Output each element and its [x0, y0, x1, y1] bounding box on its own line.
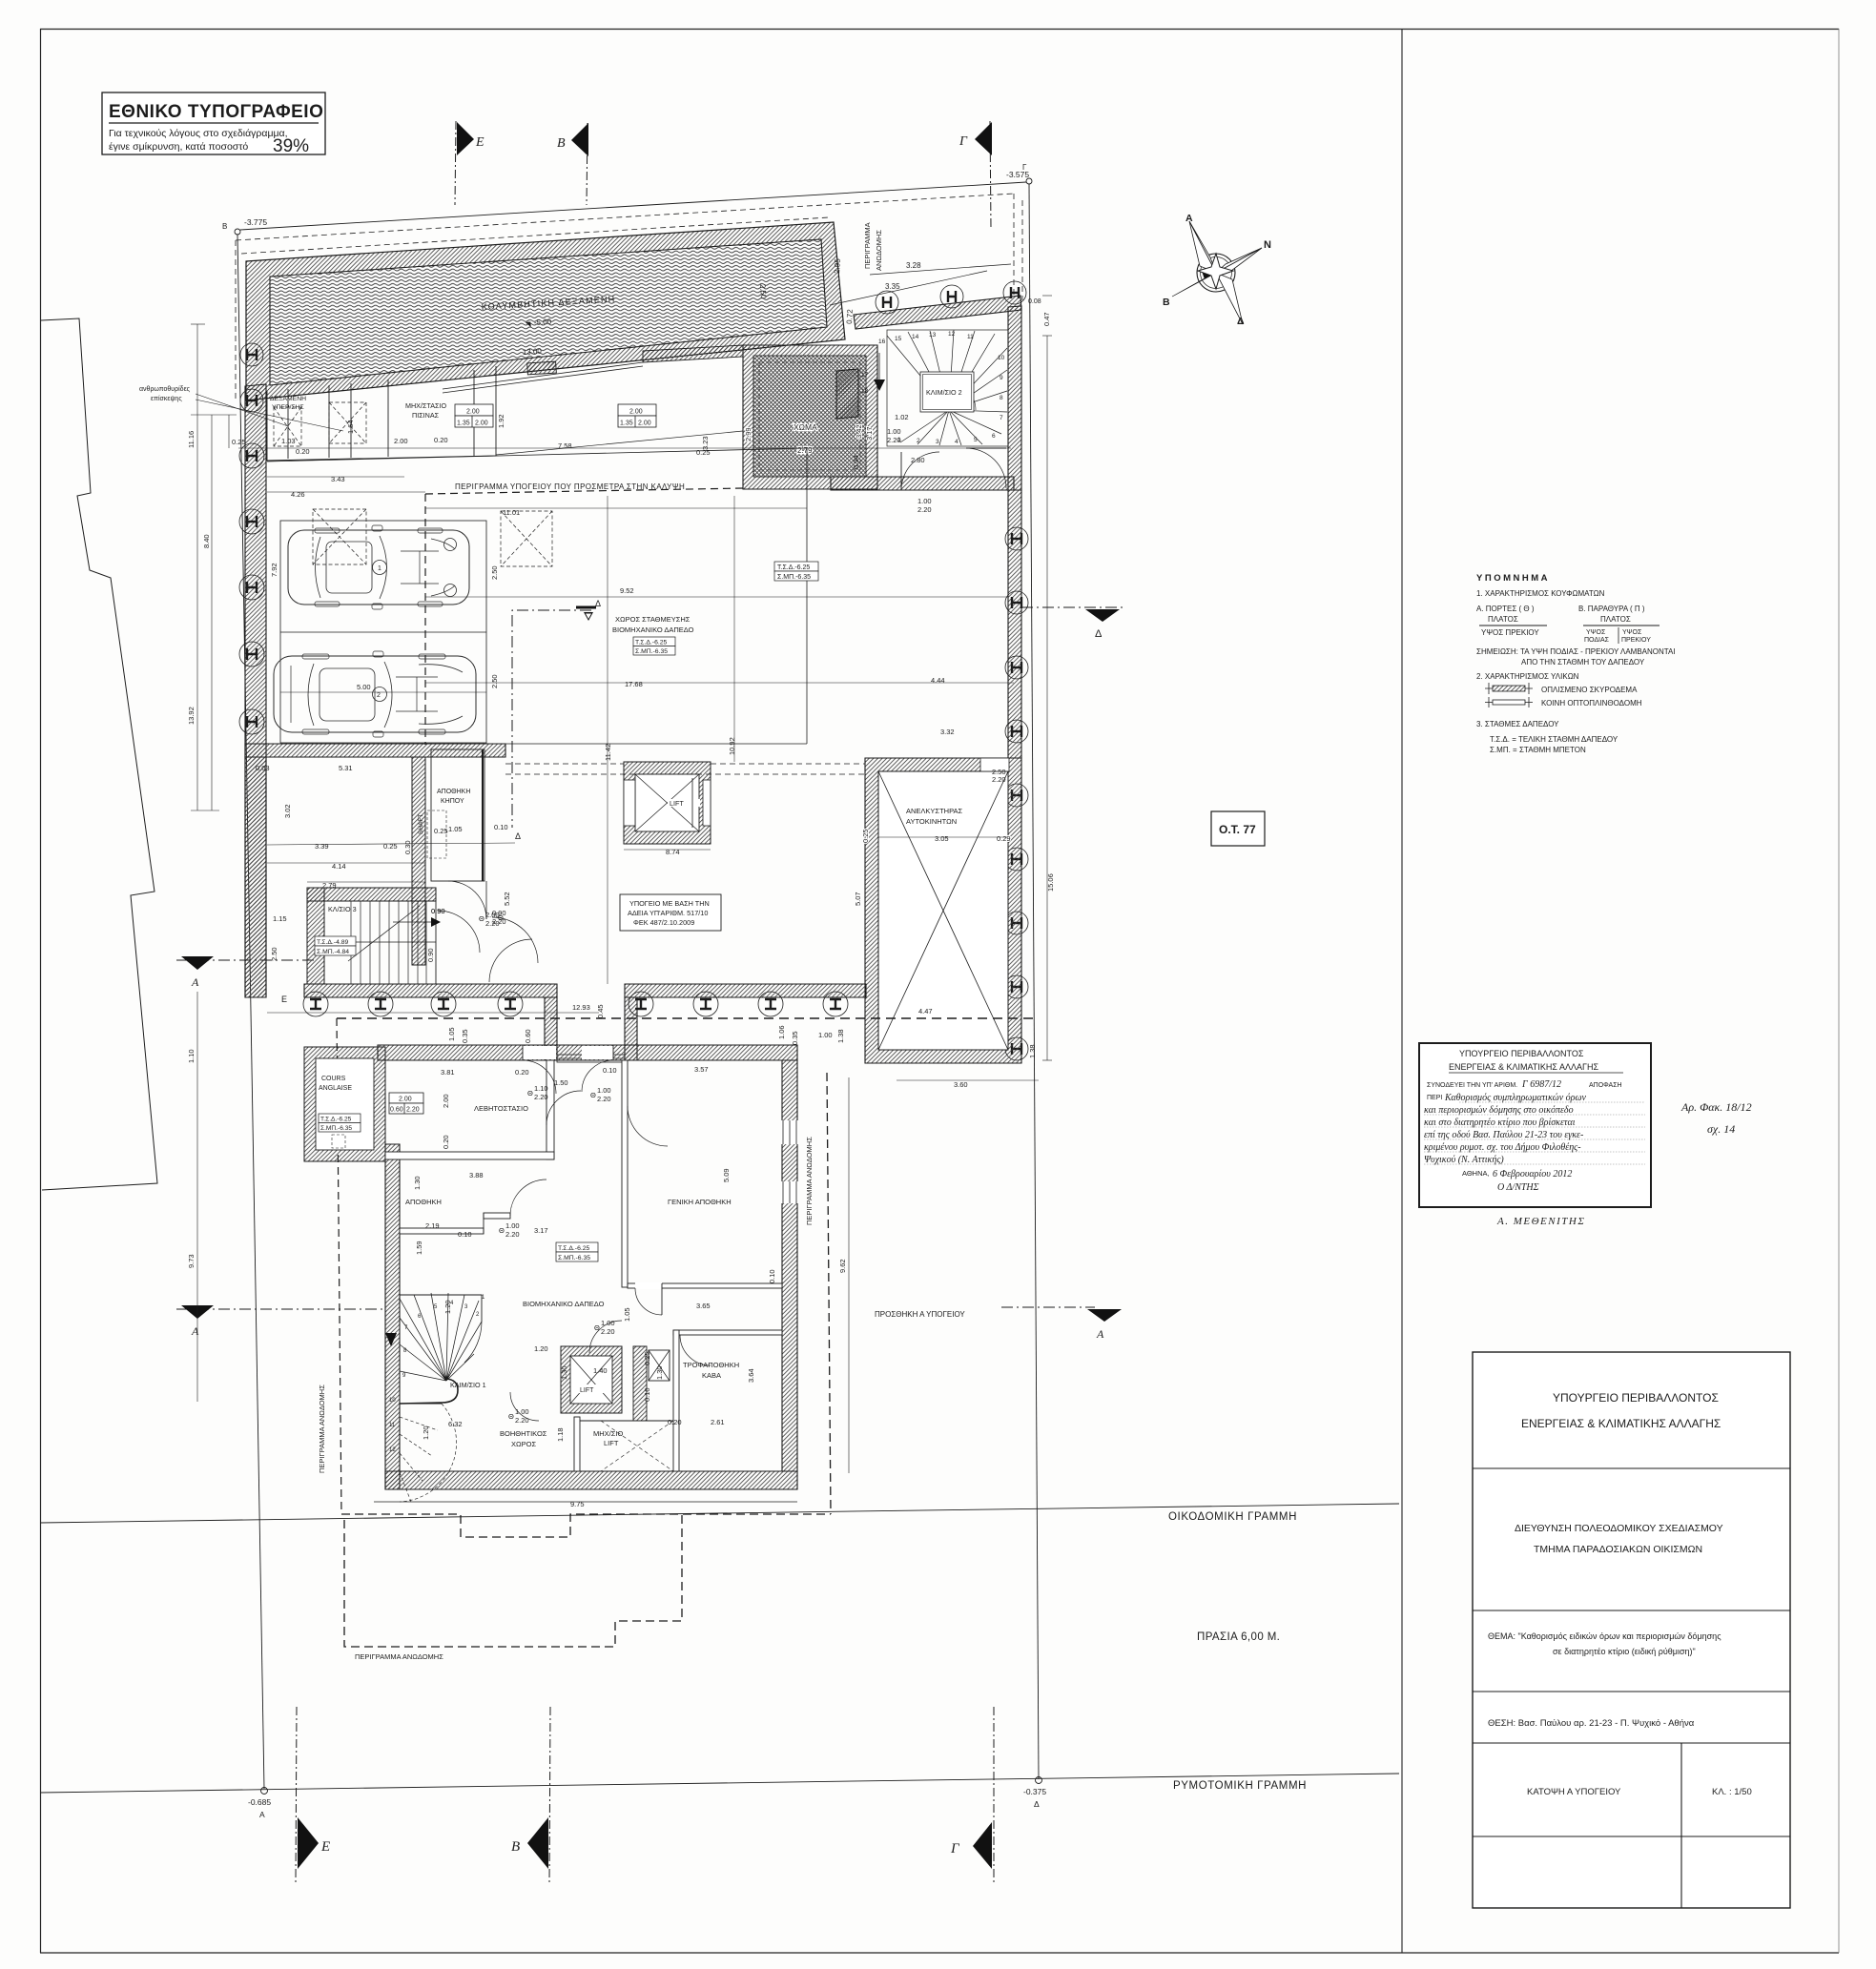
svg-text:1.30: 1.30	[655, 1365, 664, 1380]
svg-text:2.00: 2.00	[475, 420, 488, 427]
svg-text:0.20: 0.20	[442, 1135, 450, 1149]
svg-text:Σ.ΜΠ.-6.35: Σ.ΜΠ.-6.35	[320, 1125, 352, 1132]
svg-text:Σ.ΜΠ.-6.35: Σ.ΜΠ.-6.35	[558, 1255, 590, 1261]
svg-text:1.03: 1.03	[281, 437, 296, 445]
svg-text:1.40: 1.40	[593, 1366, 608, 1375]
svg-text:ΥΠΟΥΡΓΕΙΟ ΠΕΡΙΒΑΛΛΟΝΤΟΣ: ΥΠΟΥΡΓΕΙΟ ΠΕΡΙΒΑΛΛΟΝΤΟΣ	[1459, 1049, 1584, 1058]
svg-text:15: 15	[895, 336, 902, 342]
svg-text:ΣΗΜΕΙΩΣΗ: ΤΑ ΥΨΗ ΠΟΔΙΑΣ - ΠΡΕΚ: ΣΗΜΕΙΩΣΗ: ΤΑ ΥΨΗ ΠΟΔΙΑΣ - ΠΡΕΚΙΟΥ ΛΑΜΒΑΝ…	[1476, 647, 1676, 656]
svg-text:Θ: Θ	[527, 1089, 533, 1097]
svg-text:Α. ΠΟΡΤΕΣ ( Θ ): Α. ΠΟΡΤΕΣ ( Θ )	[1476, 605, 1535, 613]
svg-text:ΠΕΡΙΓΡΑΜΜΑ ΑΝΩΔΟΜΗΣ: ΠΕΡΙΓΡΑΜΜΑ ΑΝΩΔΟΜΗΣ	[355, 1652, 443, 1661]
svg-text:1.05: 1.05	[623, 1307, 631, 1322]
svg-text:39%: 39%	[273, 136, 309, 156]
svg-text:Ε: Ε	[281, 995, 287, 1004]
svg-text:ΚΛ/ΣΙΟ 3: ΚΛ/ΣΙΟ 3	[328, 905, 357, 913]
svg-text:Α: Α	[259, 1810, 265, 1819]
svg-text:16: 16	[878, 338, 886, 345]
svg-text:0.35: 0.35	[791, 1031, 799, 1045]
svg-text:1.10: 1.10	[187, 1049, 196, 1063]
svg-text:1.38: 1.38	[1028, 1044, 1037, 1058]
svg-text:0.47: 0.47	[1042, 312, 1051, 326]
svg-text:ΥΨΟΣ: ΥΨΟΣ	[1586, 629, 1606, 636]
svg-text:8: 8	[1000, 395, 1003, 401]
svg-text:ανθρωποθυρίδες: ανθρωποθυρίδες	[139, 385, 191, 393]
svg-text:Δ: Δ	[515, 831, 521, 841]
svg-text:1.00: 1.00	[597, 1086, 611, 1095]
svg-text:3.32: 3.32	[940, 728, 955, 736]
svg-text:ΥΨΟΣ ΠΡΕΚΙΟΥ: ΥΨΟΣ ΠΡΕΚΙΟΥ	[1481, 628, 1539, 637]
svg-text:1.20: 1.20	[443, 1300, 452, 1314]
svg-text:3.35: 3.35	[885, 282, 900, 291]
svg-text:Σ.ΜΠ.-4.84: Σ.ΜΠ.-4.84	[317, 949, 349, 955]
svg-text:Αρ. Φακ. 18/12: Αρ. Φακ. 18/12	[1680, 1100, 1752, 1114]
svg-text:0.08: 0.08	[1028, 298, 1041, 305]
svg-text:ΘΕΣΗ: Βασ. Παύλου αρ. 21-23: ΘΕΣΗ: Βασ. Παύλου αρ. 21-23 - Π. Ψυχικό …	[1488, 1718, 1695, 1729]
svg-text:-0.685: -0.685	[248, 1797, 271, 1807]
svg-text:0.72: 0.72	[845, 309, 855, 325]
svg-text:ΓΕΝΙΚΗ ΑΠΟΘΗΚΗ: ΓΕΝΙΚΗ ΑΠΟΘΗΚΗ	[668, 1198, 732, 1206]
svg-text:ΔΙΕΥΘΥΝΣΗ ΠΟΛΕΟΔΟΜΙΚΟΥ ΣΧΕΔΙΑΣ: ΔΙΕΥΘΥΝΣΗ ΠΟΛΕΟΔΟΜΙΚΟΥ ΣΧΕΔΙΑΣΜΟΥ	[1515, 1523, 1723, 1534]
svg-text:0.30: 0.30	[403, 840, 412, 854]
svg-text:5.00: 5.00	[357, 683, 371, 691]
svg-text:2.00: 2.00	[442, 1094, 450, 1108]
svg-text:2.20: 2.20	[505, 1230, 520, 1239]
svg-text:2.50: 2.50	[490, 674, 499, 688]
svg-text:Δ: Δ	[1095, 628, 1103, 640]
svg-text:ΣΥΝΟΔΕΥΕΙ ΤΗΝ ΥΠ' ΑΡΙΘΜ.: ΣΥΝΟΔΕΥΕΙ ΤΗΝ ΥΠ' ΑΡΙΘΜ.	[1427, 1082, 1517, 1089]
svg-text:7.92: 7.92	[270, 563, 278, 577]
svg-text:Γ 6987/12: Γ 6987/12	[1521, 1079, 1561, 1090]
svg-text:Θ: Θ	[499, 1226, 505, 1235]
svg-text:0.35: 0.35	[461, 1029, 469, 1043]
svg-text:ΥΠΟΥΡΓΕΙΟ ΠΕΡΙΒΑΛΛΟΝΤΟΣ: ΥΠΟΥΡΓΕΙΟ ΠΕΡΙΒΑΛΛΟΝΤΟΣ	[1553, 1391, 1719, 1405]
svg-text:15.06: 15.06	[1046, 873, 1055, 892]
svg-text:LIFT: LIFT	[670, 799, 684, 808]
svg-text:3.28: 3.28	[906, 261, 921, 270]
svg-text:LIFT: LIFT	[580, 1387, 594, 1394]
svg-text:3.57: 3.57	[694, 1065, 709, 1074]
svg-text:ΟΙΚΟΔΟΜΙΚΗ ΓΡΑΜΜΗ: ΟΙΚΟΔΟΜΙΚΗ ΓΡΑΜΜΗ	[1168, 1511, 1297, 1523]
svg-text:1. ΧΑΡΑΚΤΗΡΙΣΜΟΣ ΚΟΥΦΩΜΑΤΩΝ: 1. ΧΑΡΑΚΤΗΡΙΣΜΟΣ ΚΟΥΦΩΜΑΤΩΝ	[1476, 589, 1605, 598]
svg-text:Σ.ΜΠ.-6.35: Σ.ΜΠ.-6.35	[777, 574, 811, 581]
svg-text:Β. ΠΑΡΑΘΥΡΑ ( Π ): Β. ΠΑΡΑΘΥΡΑ ( Π )	[1578, 605, 1645, 613]
svg-text:9: 9	[1000, 375, 1003, 381]
svg-text:ΒΙΟΜΗΧΑΝΙΚΟ ΔΑΠΕΔΟ: ΒΙΟΜΗΧΑΝΙΚΟ ΔΑΠΕΔΟ	[523, 1300, 605, 1308]
svg-text:ΠΕΡΙΓΡΑΜΜΑ ΑΝΩΔΟΜΗΣ: ΠΕΡΙΓΡΑΜΜΑ ΑΝΩΔΟΜΗΣ	[318, 1384, 326, 1473]
svg-text:Σ.ΜΠ.-6.35: Σ.ΜΠ.-6.35	[635, 648, 668, 655]
svg-text:1.92: 1.92	[497, 414, 505, 428]
svg-text:ΜΗΧ/ΣΙΟ: ΜΗΧ/ΣΙΟ	[593, 1429, 623, 1438]
svg-text:ΑΘΗΝΑ,: ΑΘΗΝΑ,	[1462, 1169, 1490, 1178]
svg-text:0.10: 0.10	[643, 1387, 651, 1402]
svg-text:2.80: 2.80	[911, 456, 925, 464]
svg-text:0.10: 0.10	[494, 823, 508, 831]
svg-text:1: 1	[378, 565, 381, 572]
svg-text:ΛΕΒΗΤΟΣΤΑΣΙΟ: ΛΕΒΗΤΟΣΤΑΣΙΟ	[474, 1104, 528, 1113]
svg-text:3.42: 3.42	[855, 424, 863, 439]
svg-text:13.92: 13.92	[187, 707, 196, 725]
svg-text:Α. ΜΕΘΕΝΙΤΗΣ: Α. ΜΕΘΕΝΙΤΗΣ	[1496, 1216, 1585, 1227]
svg-text:2.00: 2.00	[629, 409, 643, 416]
svg-text:3.65: 3.65	[696, 1302, 711, 1310]
svg-text:2.00: 2.00	[466, 409, 480, 416]
svg-text:18: 18	[861, 388, 869, 395]
svg-text:1.00: 1.00	[818, 1031, 833, 1039]
svg-text:0.60: 0.60	[390, 1107, 403, 1114]
svg-text:1.02: 1.02	[895, 413, 909, 421]
svg-text:5.52: 5.52	[503, 892, 511, 906]
svg-text:0.45: 0.45	[596, 1004, 605, 1018]
svg-text:ΚΛΙΜ/ΣΙΟ 1: ΚΛΙΜ/ΣΙΟ 1	[450, 1381, 486, 1389]
svg-text:1.35: 1.35	[457, 420, 470, 427]
svg-text:SHAFT: SHAFT	[418, 814, 424, 834]
svg-text:ΑΔΕΙΑ ΥΠ'ΑΡΙΘΜ. 517/10: ΑΔΕΙΑ ΥΠ'ΑΡΙΘΜ. 517/10	[628, 909, 708, 917]
svg-text:-3.775: -3.775	[244, 217, 267, 227]
svg-text:3.43: 3.43	[331, 475, 345, 483]
svg-text:4: 4	[955, 439, 959, 445]
svg-text:0.25: 0.25	[383, 842, 398, 851]
svg-text:1.50: 1.50	[554, 1078, 568, 1087]
svg-text:14: 14	[912, 334, 919, 340]
svg-text:2.19: 2.19	[425, 1221, 440, 1230]
svg-text:Τ.Σ.Δ.-6.25: Τ.Σ.Δ.-6.25	[635, 640, 668, 646]
svg-text:17.68: 17.68	[625, 680, 643, 688]
svg-text:4.44: 4.44	[931, 676, 945, 685]
svg-text:12: 12	[389, 1447, 396, 1453]
svg-text:2.00: 2.00	[394, 437, 408, 445]
svg-text:3.17: 3.17	[865, 426, 874, 441]
svg-text:1.20: 1.20	[534, 1344, 548, 1353]
svg-text:6: 6	[992, 433, 996, 440]
svg-text:ΚΑΤΟΨΗ Α ΥΠΟΓΕΙΟΥ: ΚΑΤΟΨΗ Α ΥΠΟΓΕΙΟΥ	[1527, 1787, 1621, 1797]
svg-text:Τ.Σ.Δ.-6.25: Τ.Σ.Δ.-6.25	[320, 1117, 352, 1123]
svg-text:Θ: Θ	[479, 914, 484, 923]
svg-text:ΥΨΟΣ: ΥΨΟΣ	[1622, 629, 1642, 636]
svg-text:Δ: Δ	[1034, 1799, 1040, 1809]
svg-text:ΚΑΒΑ: ΚΑΒΑ	[702, 1371, 721, 1380]
svg-text:Α: Α	[1096, 1327, 1104, 1341]
svg-text:3.60: 3.60	[954, 1080, 968, 1089]
svg-text:3.02: 3.02	[283, 804, 292, 818]
svg-text:Τ.Σ.Δ.-4.89: Τ.Σ.Δ.-4.89	[317, 939, 349, 946]
svg-text:1.15: 1.15	[273, 914, 287, 923]
svg-text:1.00: 1.00	[505, 1221, 520, 1230]
svg-text:6 Φεβρουαρίου 2012: 6 Φεβρουαρίου 2012	[1493, 1169, 1572, 1179]
svg-text:13.00: 13.00	[523, 347, 543, 357]
svg-text:2.50: 2.50	[758, 284, 768, 300]
svg-text:-0.375: -0.375	[1023, 1787, 1046, 1796]
svg-text:ΚΗΠΟΥ: ΚΗΠΟΥ	[441, 798, 464, 805]
svg-text:ΚΛ. : 1/50: ΚΛ. : 1/50	[1712, 1787, 1752, 1797]
svg-text:και στο διατηρητέο κτίριο που: και στο διατηρητέο κτίριο που βρίσκεται	[1424, 1118, 1576, 1128]
svg-text:3.05: 3.05	[935, 834, 949, 843]
svg-text:ΑΠΟ ΤΗΝ ΣΤΑΘΜΗ ΤΟΥ ΔΑΠΕΔΟΥ: ΑΠΟ ΤΗΝ ΣΤΑΘΜΗ ΤΟΥ ΔΑΠΕΔΟΥ	[1521, 658, 1645, 667]
svg-text:3.81: 3.81	[441, 1068, 455, 1077]
svg-text:ΠΕΡΙΓΡΑΜΜΑ: ΠΕΡΙΓΡΑΜΜΑ	[863, 222, 872, 269]
svg-text:11: 11	[967, 334, 974, 340]
svg-text:13: 13	[929, 332, 937, 338]
svg-text:1.59: 1.59	[415, 1241, 423, 1255]
svg-text:0.25: 0.25	[696, 448, 711, 457]
svg-text:έγινε σμίκρυνση, κατά ποσοστό: έγινε σμίκρυνση, κατά ποσοστό	[109, 141, 248, 153]
svg-text:10.92: 10.92	[728, 737, 736, 755]
svg-text:ΒΟΗΘΗΤΙΚΟΣ: ΒΟΗΘΗΤΙΚΟΣ	[500, 1429, 547, 1438]
svg-text:Β: Β	[1163, 297, 1170, 308]
svg-text:2.50: 2.50	[270, 947, 278, 961]
svg-text:Τ.Σ.Δ.-6.25: Τ.Σ.Δ.-6.25	[777, 564, 810, 571]
svg-text:2: 2	[917, 438, 920, 444]
svg-text:2.79: 2.79	[797, 446, 813, 455]
svg-text:4.47: 4.47	[918, 1007, 933, 1015]
svg-text:Ο Δ/ΝΤΗΣ: Ο Δ/ΝΤΗΣ	[1497, 1182, 1539, 1193]
svg-text:12: 12	[948, 331, 956, 338]
svg-text:ΚΟΙΝΗ ΟΠΤΟΠΛΙΝΘΟΔΟΜΗ: ΚΟΙΝΗ ΟΠΤΟΠΛΙΝΘΟΔΟΜΗ	[1541, 699, 1642, 708]
svg-text:6.32: 6.32	[448, 1420, 463, 1428]
svg-text:2.00: 2.00	[638, 420, 651, 427]
svg-text:ΠΡΟΣΘΗΚΗ Α ΥΠΟΓΕΙΟΥ: ΠΡΟΣΘΗΚΗ Α ΥΠΟΓΕΙΟΥ	[875, 1310, 965, 1319]
svg-text:12.93: 12.93	[572, 1003, 590, 1012]
svg-text:1.10: 1.10	[534, 1084, 548, 1093]
svg-text:5: 5	[974, 437, 978, 443]
svg-text:0.10: 0.10	[458, 1230, 472, 1239]
svg-text:ΑΠΟΘΗΚΗ: ΑΠΟΘΗΚΗ	[437, 789, 470, 795]
svg-text:Τ.Σ.Δ. = ΤΕΛΙΚΗ ΣΤΑΘΜΗ ΔΑΠΕ: Τ.Σ.Δ. = ΤΕΛΙΚΗ ΣΤΑΘΜΗ ΔΑΠΕΔΟΥ	[1490, 735, 1618, 744]
svg-text:0.90: 0.90	[431, 907, 445, 915]
svg-text:σχ. 14: σχ. 14	[1707, 1122, 1735, 1136]
svg-text:Β: Β	[557, 136, 566, 151]
svg-text:σε διατηρητέο κτίριο (ειδική ρ: σε διατηρητέο κτίριο (ειδική ρύθμιση)"	[1553, 1647, 1696, 1656]
svg-text:1.00: 1.00	[601, 1319, 615, 1327]
svg-text:1.30: 1.30	[413, 1176, 422, 1190]
svg-text:ΧΩΡΟΣ ΣΤΑΘΜΕΥΣΗΣ: ΧΩΡΟΣ ΣΤΑΘΜΕΥΣΗΣ	[615, 615, 691, 624]
svg-text:11.16: 11.16	[187, 431, 196, 448]
svg-text:κριμένου ρυμοτ. σχ. του Δήμου: κριμένου ρυμοτ. σχ. του Δήμου Φιλοθέης-	[1424, 1142, 1581, 1153]
svg-text:0.25: 0.25	[861, 829, 870, 843]
svg-text:Τ.Σ.Δ.-6.25: Τ.Σ.Δ.-6.25	[558, 1245, 590, 1252]
svg-text:ΑΝΕΛΚΥΣΤΗΡΑΣ: ΑΝΕΛΚΥΣΤΗΡΑΣ	[906, 807, 963, 815]
svg-text:8.40: 8.40	[202, 534, 211, 548]
svg-text:επί της οδού Βασ. Παύλου 21-23: επί της οδού Βασ. Παύλου 21-23 του εγκε-	[1424, 1130, 1583, 1140]
svg-text:ΦΕΚ 487/2.10.2009: ΦΕΚ 487/2.10.2009	[633, 918, 694, 927]
svg-text:ΕΝΕΡΓΕΙΑΣ & ΚΛΙΜΑΤΙΚΗΣ ΑΛΛ: ΕΝΕΡΓΕΙΑΣ & ΚΛΙΜΑΤΙΚΗΣ ΑΛΛΑΓΗΣ	[1449, 1062, 1598, 1072]
svg-text:0.25: 0.25	[643, 1351, 651, 1365]
svg-text:2.20: 2.20	[597, 1095, 611, 1103]
svg-text:2.20: 2.20	[887, 436, 901, 444]
svg-text:-3.575: -3.575	[1006, 170, 1029, 179]
svg-text:ΠΡΕΚΙΟΥ: ΠΡΕΚΙΟΥ	[1621, 637, 1651, 644]
svg-text:ΠΕΡΙΓΡΑΜΜΑ ΑΝΩΔΟΜΗΣ: ΠΕΡΙΓΡΑΜΜΑ ΑΝΩΔΟΜΗΣ	[805, 1137, 814, 1225]
svg-text:1.06: 1.06	[777, 1025, 786, 1039]
svg-text:3.64: 3.64	[747, 1368, 755, 1383]
svg-text:3. ΣΤΑΘΜΕΣ ΔΑΠΕΔΟΥ: 3. ΣΤΑΘΜΕΣ ΔΑΠΕΔΟΥ	[1476, 720, 1559, 728]
svg-text:Β: Β	[511, 1839, 520, 1855]
svg-text:0.10: 0.10	[603, 1066, 617, 1075]
svg-text:ΑΥΤΟΚΙΝΗΤΩΝ: ΑΥΤΟΚΙΝΗΤΩΝ	[906, 817, 957, 826]
svg-text:Θ: Θ	[594, 1323, 600, 1332]
svg-text:Α: Α	[1185, 213, 1193, 224]
svg-text:ΑΠΟΘΗΚΗ: ΑΠΟΘΗΚΗ	[405, 1198, 442, 1206]
svg-text:Δ: Δ	[1237, 316, 1245, 327]
svg-text:Για τεχνικούς λόγους στο σχεδι: Για τεχνικούς λόγους στο σχεδιάγραμμα,	[109, 128, 288, 139]
svg-text:5.07: 5.07	[854, 892, 862, 906]
svg-text:3.39: 3.39	[315, 842, 329, 851]
svg-text:0.25: 0.25	[434, 827, 448, 835]
svg-text:2.20: 2.20	[992, 775, 1006, 784]
svg-text:11.42: 11.42	[604, 744, 612, 761]
svg-text:9.73: 9.73	[187, 1254, 196, 1268]
svg-text:1.64: 1.64	[346, 420, 355, 434]
svg-text:0.20: 0.20	[434, 436, 448, 444]
svg-text:1.38: 1.38	[836, 1029, 845, 1043]
svg-text:0.25: 0.25	[232, 438, 246, 446]
svg-text:ΚΛΙΜ/ΣΙΟ 2: ΚΛΙΜ/ΣΙΟ 2	[926, 388, 962, 397]
svg-text:Α: Α	[191, 975, 199, 989]
svg-text:2.20: 2.20	[485, 919, 500, 928]
svg-text:ΠΙΣΙΝΑΣ: ΠΙΣΙΝΑΣ	[412, 411, 440, 420]
svg-text:9.52: 9.52	[620, 586, 634, 595]
svg-text:1.30: 1.30	[560, 1365, 568, 1380]
svg-text:2: 2	[377, 692, 381, 699]
svg-text:2.95: 2.95	[833, 258, 842, 275]
svg-text:0.94: 0.94	[852, 455, 860, 469]
svg-text:COURS: COURS	[321, 1076, 346, 1082]
svg-text:ΡΥΜΟΤΟΜΙΚΗ ΓΡΑΜΜΗ: ΡΥΜΟΤΟΜΙΚΗ ΓΡΑΜΜΗ	[1173, 1780, 1307, 1792]
svg-text:2.00: 2.00	[485, 911, 500, 919]
svg-text:2.20: 2.20	[515, 1416, 529, 1425]
svg-text:Ε: Ε	[320, 1839, 330, 1855]
svg-text:Ο.Τ. 77: Ο.Τ. 77	[1219, 823, 1256, 836]
svg-text:ΥΠΟΓΕΙΟ ΜΕ ΒΑΣΗ ΤΗΝ: ΥΠΟΓΕΙΟ ΜΕ ΒΑΣΗ ΤΗΝ	[629, 899, 710, 908]
svg-text:2.20: 2.20	[601, 1327, 615, 1336]
svg-text:0.10: 0.10	[768, 1269, 776, 1283]
svg-text:και περιορισμών δόμησης στο οι: και περιορισμών δόμησης στο οικόπεδο	[1424, 1105, 1574, 1116]
svg-text:10: 10	[389, 1398, 396, 1404]
svg-text:LIFT: LIFT	[604, 1439, 619, 1447]
svg-text:Δ: Δ	[595, 599, 601, 608]
svg-text:0.60: 0.60	[524, 1029, 532, 1043]
svg-text:0.20: 0.20	[515, 1068, 529, 1077]
svg-text:ΜΗΧ/ΣΤΑΣΙΟ: ΜΗΧ/ΣΤΑΣΙΟ	[405, 401, 447, 410]
svg-text:2.20: 2.20	[534, 1093, 548, 1101]
svg-text:2.00: 2.00	[399, 1097, 412, 1103]
svg-text:ΠΟΔΙΑΣ: ΠΟΔΙΑΣ	[1584, 637, 1610, 644]
svg-text:2.50: 2.50	[490, 565, 499, 580]
svg-text:1.00: 1.00	[887, 427, 901, 436]
svg-text:ΥΠΟΜΝΗΜΑ: ΥΠΟΜΝΗΜΑ	[1476, 573, 1550, 584]
svg-text:0.20: 0.20	[668, 1418, 682, 1426]
svg-text:9.75: 9.75	[570, 1500, 585, 1508]
svg-text:ΟΠΛΙΣΜΕΝΟ ΣΚΥΡΟΔΕΜΑ: ΟΠΛΙΣΜΕΝΟ ΣΚΥΡΟΔΕΜΑ	[1541, 686, 1638, 694]
svg-text:0.29: 0.29	[997, 834, 1011, 843]
svg-text:Β: Β	[222, 222, 227, 231]
svg-text:ΠΡΑΣΙΑ 6,00 Μ.: ΠΡΑΣΙΑ 6,00 Μ.	[1197, 1631, 1280, 1643]
svg-text:ANGLAISE: ANGLAISE	[319, 1085, 352, 1092]
svg-text:1.00: 1.00	[917, 497, 932, 505]
svg-text:2. ΧΑΡΑΚΤΗΡΙΣΜΟΣ ΥΛΙΚΩΝ: 2. ΧΑΡΑΚΤΗΡΙΣΜΟΣ ΥΛΙΚΩΝ	[1476, 672, 1579, 681]
svg-text:Ε: Ε	[475, 135, 484, 150]
svg-text:ΕΘΝΙΚΟ ΤΥΠΟΓΡΑΦΕΙΟ: ΕΘΝΙΚΟ ΤΥΠΟΓΡΑΦΕΙΟ	[109, 102, 323, 122]
svg-text:2.61: 2.61	[711, 1418, 725, 1426]
svg-text:3: 3	[936, 439, 939, 445]
svg-text:ΠΛΑΤΟΣ: ΠΛΑΤΟΣ	[1600, 615, 1631, 624]
svg-text:0.90: 0.90	[426, 948, 435, 962]
svg-text:Ψυχικού (Ν. Αττικής): Ψυχικού (Ν. Αττικής)	[1424, 1155, 1504, 1165]
svg-text:Καθορισμός συμπληρωματικών όρω: Καθορισμός συμπληρωματικών όρων	[1444, 1093, 1587, 1103]
svg-text:ΧΩΡΟΣ: ΧΩΡΟΣ	[511, 1440, 536, 1448]
svg-text:1.05: 1.05	[447, 1027, 456, 1041]
svg-text:ΔΕΞΑΜΕΝΗ: ΔΕΞΑΜΕΝΗ	[270, 396, 306, 402]
svg-text:ΘΕΜΑ: "Καθορισμός ειδικών όρ: ΘΕΜΑ: "Καθορισμός ειδικών όρων και περιο…	[1488, 1631, 1721, 1641]
svg-text:ΠΕΡΙ: ΠΕΡΙ	[1427, 1095, 1442, 1101]
svg-text:ΑΠΟΦΑΣΗ: ΑΠΟΦΑΣΗ	[1589, 1082, 1622, 1089]
svg-text:3.17: 3.17	[534, 1226, 548, 1235]
svg-text:9.62: 9.62	[838, 1259, 847, 1273]
svg-text:Σ.ΜΠ. = ΣΤΑΘΜΗ ΜΠΕΤΟΝ: Σ.ΜΠ. = ΣΤΑΘΜΗ ΜΠΕΤΟΝ	[1490, 746, 1586, 754]
svg-text:Γ: Γ	[950, 1841, 960, 1856]
svg-text:ΒΙΟΜΗΧΑΝΙΚΟ ΔΑΠΕΔΟ: ΒΙΟΜΗΧΑΝΙΚΟ ΔΑΠΕΔΟ	[612, 626, 694, 634]
svg-text:1.20: 1.20	[422, 1425, 430, 1440]
svg-text:Γ: Γ	[959, 134, 968, 149]
svg-text:Θ: Θ	[508, 1412, 514, 1421]
svg-text:2.20: 2.20	[917, 505, 932, 514]
svg-text:2.99: 2.99	[744, 427, 752, 441]
svg-text:4.26: 4.26	[291, 490, 305, 499]
svg-text:2.20: 2.20	[406, 1107, 420, 1114]
svg-text:0.20: 0.20	[296, 447, 310, 456]
svg-text:ΧΩΜΑ: ΧΩΜΑ	[794, 422, 817, 432]
svg-text:1.00: 1.00	[515, 1407, 529, 1416]
svg-text:17: 17	[861, 372, 869, 379]
svg-text:ΑΝΩΔΟΜΗΣ: ΑΝΩΔΟΜΗΣ	[875, 230, 883, 271]
svg-text:ΕΝΕΡΓΕΙΑΣ & ΚΛΙΜΑΤΙΚΗΣ ΑΛΛΑΓΗΣ: ΕΝΕΡΓΕΙΑΣ & ΚΛΙΜΑΤΙΚΗΣ ΑΛΛΑΓΗΣ	[1521, 1417, 1721, 1430]
svg-text:Ν: Ν	[1264, 239, 1271, 251]
svg-text:Α: Α	[191, 1324, 199, 1338]
svg-text:11: 11	[389, 1423, 396, 1428]
svg-text:10: 10	[998, 355, 1005, 361]
svg-text:5.31: 5.31	[339, 764, 353, 772]
svg-text:επίσκεψης: επίσκεψης	[151, 395, 182, 402]
svg-text:3.88: 3.88	[469, 1171, 484, 1179]
svg-text:ΤΡΟΦΑΠΟΘΗΚΗ: ΤΡΟΦΑΠΟΘΗΚΗ	[683, 1361, 739, 1369]
svg-text:ΤΜΗΜΑ ΠΑΡΑΔΟΣΙΑΚΩΝ ΟΙΚΙΣΜΩΝ: ΤΜΗΜΑ ΠΑΡΑΔΟΣΙΑΚΩΝ ΟΙΚΙΣΜΩΝ	[1534, 1544, 1702, 1555]
svg-text:4.14: 4.14	[332, 862, 346, 871]
svg-text:8.74: 8.74	[666, 848, 680, 856]
svg-text:Θ: Θ	[590, 1091, 596, 1099]
svg-text:ΠΛΑΤΟΣ: ΠΛΑΤΟΣ	[1488, 615, 1518, 624]
svg-text:1.05: 1.05	[448, 825, 463, 833]
svg-text:1.18: 1.18	[556, 1427, 565, 1442]
svg-text:1.35: 1.35	[620, 420, 633, 427]
svg-text:-5.00: -5.00	[534, 318, 552, 327]
svg-text:5.09: 5.09	[722, 1168, 731, 1182]
svg-text:7: 7	[1000, 415, 1003, 421]
